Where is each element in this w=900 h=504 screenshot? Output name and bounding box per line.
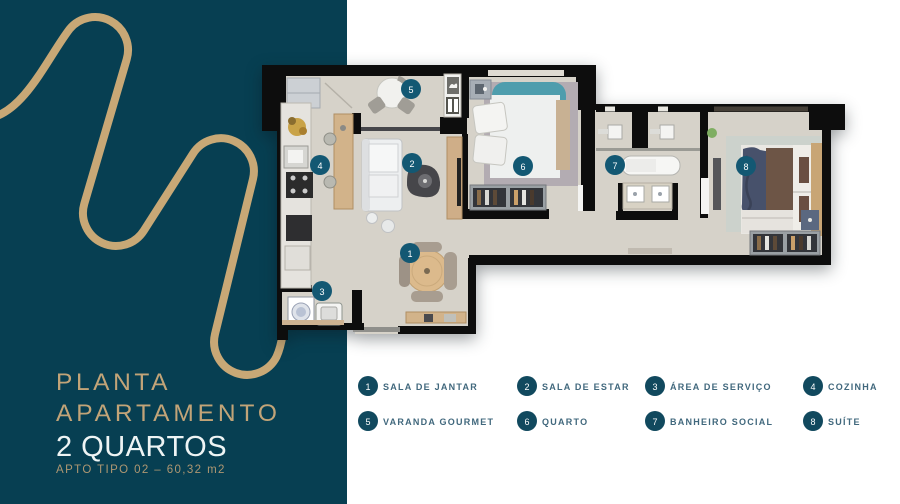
svg-text:7: 7 bbox=[612, 161, 617, 171]
svg-text:2 QUARTOS: 2 QUARTOS bbox=[56, 431, 227, 463]
svg-text:2: 2 bbox=[409, 159, 414, 169]
svg-text:BANHEIRO SOCIAL: BANHEIRO SOCIAL bbox=[670, 417, 773, 427]
svg-text:2: 2 bbox=[524, 382, 529, 392]
svg-text:1: 1 bbox=[365, 382, 370, 392]
svg-text:5: 5 bbox=[408, 85, 413, 95]
svg-text:3: 3 bbox=[319, 287, 324, 297]
svg-text:ÁREA DE SERVIÇO: ÁREA DE SERVIÇO bbox=[670, 382, 772, 392]
svg-text:PLANTA: PLANTA bbox=[56, 369, 171, 396]
svg-text:6: 6 bbox=[520, 162, 525, 172]
svg-text:APTO TIPO 02 – 60,32 m2: APTO TIPO 02 – 60,32 m2 bbox=[56, 464, 226, 476]
svg-text:4: 4 bbox=[317, 161, 322, 171]
svg-text:8: 8 bbox=[743, 162, 748, 172]
svg-text:APARTAMENTO: APARTAMENTO bbox=[56, 400, 281, 427]
svg-text:VARANDA GOURMET: VARANDA GOURMET bbox=[383, 417, 494, 427]
svg-text:6: 6 bbox=[524, 417, 529, 427]
svg-text:8: 8 bbox=[810, 417, 815, 427]
svg-text:5: 5 bbox=[365, 417, 370, 427]
svg-text:1: 1 bbox=[407, 249, 412, 259]
svg-text:QUARTO: QUARTO bbox=[542, 417, 588, 427]
svg-text:3: 3 bbox=[652, 382, 657, 392]
svg-text:7: 7 bbox=[652, 417, 657, 427]
svg-text:4: 4 bbox=[810, 382, 815, 392]
svg-text:SUÍTE: SUÍTE bbox=[828, 417, 861, 427]
svg-text:COZINHA: COZINHA bbox=[828, 382, 878, 392]
svg-text:SALA DE JANTAR: SALA DE JANTAR bbox=[383, 382, 478, 392]
svg-text:SALA DE ESTAR: SALA DE ESTAR bbox=[542, 382, 630, 392]
